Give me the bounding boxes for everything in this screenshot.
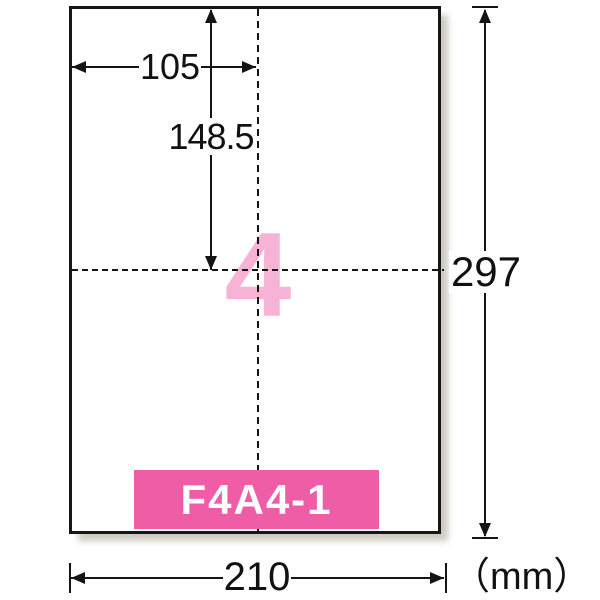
dim-1485-label: 148.5	[166, 118, 256, 155]
dim-297-tick-bottom	[472, 537, 498, 539]
arrowhead-down-icon	[205, 256, 217, 270]
unit-label: （mm）	[452, 556, 591, 598]
dim-210-tick-right	[445, 563, 447, 593]
arrowhead-left-icon	[71, 572, 85, 584]
dim-297-tick-top	[472, 6, 498, 8]
arrowhead-left-icon	[72, 61, 86, 73]
label-sheet-diagram: 4 F4A4-1 105 148.5 297 210 （mm）	[0, 0, 600, 600]
arrowhead-up-icon	[205, 9, 217, 23]
arrowhead-up-icon	[479, 9, 491, 23]
dim-210-label: 210	[223, 557, 291, 598]
dim-105-label: 105	[139, 49, 201, 85]
arrowhead-right-icon	[430, 572, 444, 584]
dim-297-label: 297	[449, 251, 523, 293]
horizontal-cut-line	[72, 269, 444, 271]
vertical-cut-line	[257, 9, 259, 537]
product-code-label: F4A4-1	[180, 476, 332, 524]
arrowhead-right-icon	[242, 61, 256, 73]
arrowhead-down-icon	[479, 523, 491, 537]
product-code-banner: F4A4-1	[134, 470, 379, 529]
